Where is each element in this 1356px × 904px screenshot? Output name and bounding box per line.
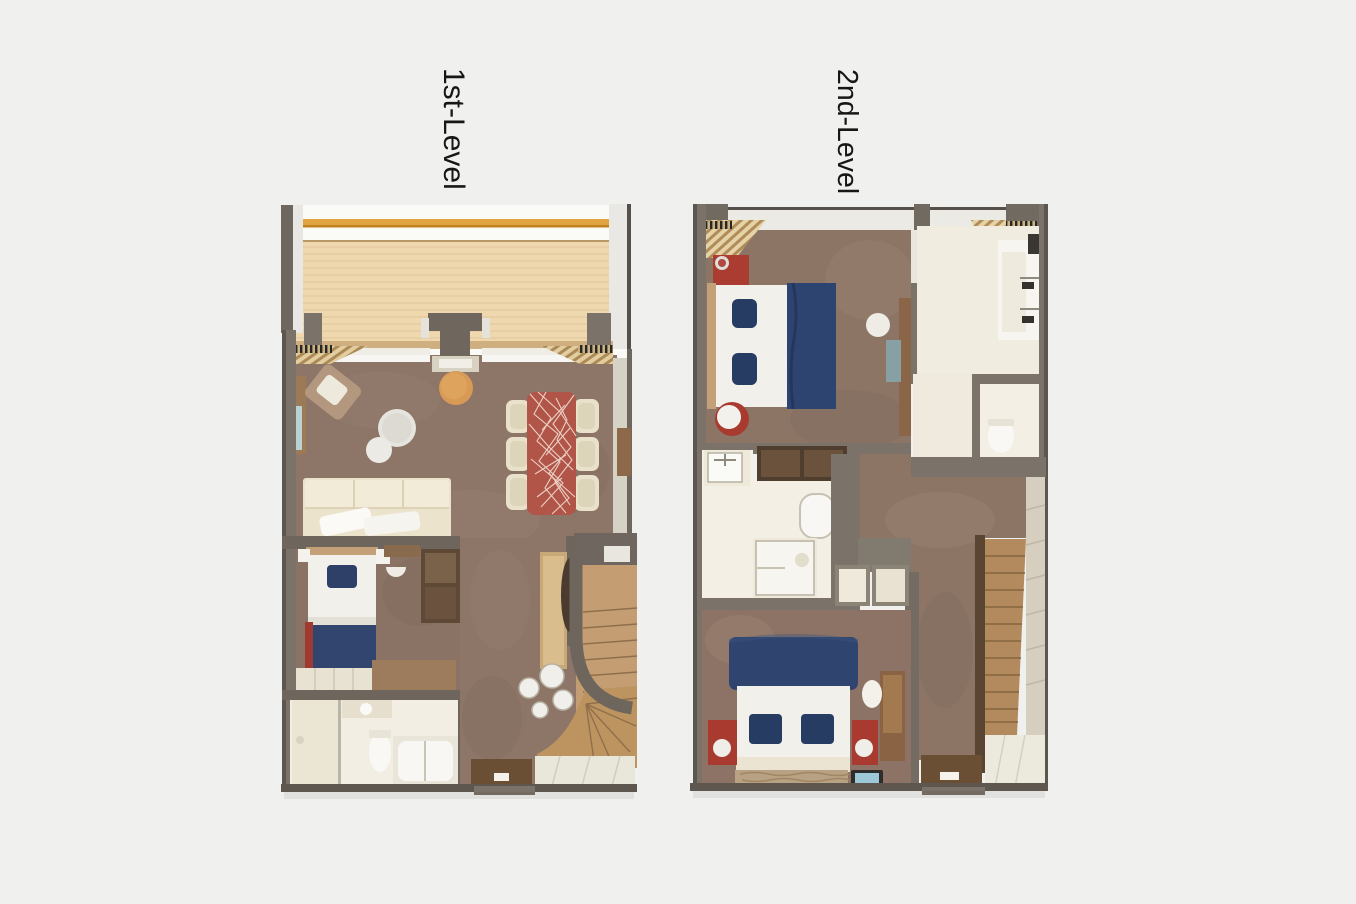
svg-text:1st-Level: 1st-Level [437,68,470,190]
svg-text:2nd-Level: 2nd-Level [831,69,863,194]
